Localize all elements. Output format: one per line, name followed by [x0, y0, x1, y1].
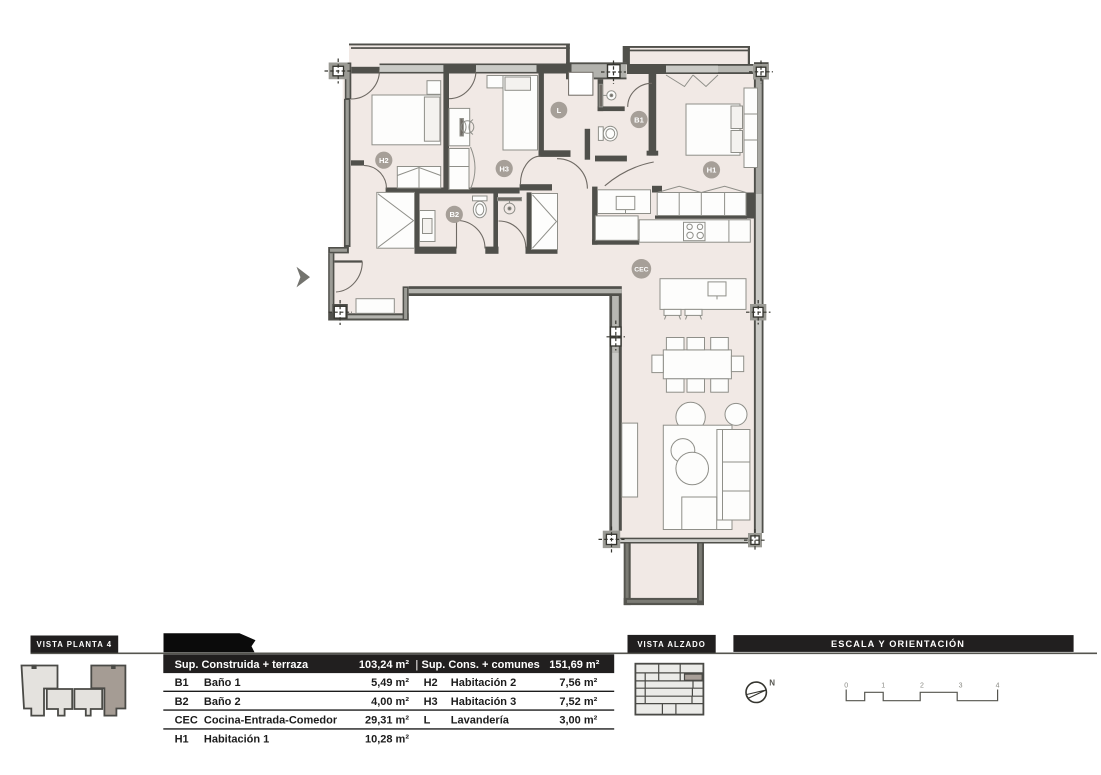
svg-text:N: N — [769, 679, 775, 688]
svg-text:B2: B2 — [175, 696, 189, 708]
svg-text:L: L — [424, 715, 431, 727]
svg-text:Sup. Cons. + comunes: Sup. Cons. + comunes — [422, 659, 540, 671]
svg-text:B1: B1 — [634, 115, 644, 124]
svg-text:5,49 m²: 5,49 m² — [371, 677, 409, 689]
svg-text:3: 3 — [959, 683, 963, 690]
svg-text:Baño 2: Baño 2 — [204, 696, 241, 708]
svg-text:7,56 m²: 7,56 m² — [559, 677, 597, 689]
svg-text:103,24 m²: 103,24 m² — [359, 659, 409, 671]
svg-text:CEC: CEC — [634, 266, 648, 273]
svg-text:Lavandería: Lavandería — [451, 715, 510, 727]
svg-text:Habitación 1: Habitación 1 — [204, 733, 269, 745]
svg-text:Cocina-Entrada-Comedor: Cocina-Entrada-Comedor — [204, 715, 338, 727]
svg-text:Habitación 3: Habitación 3 — [451, 696, 516, 708]
svg-text:Baño 1: Baño 1 — [204, 677, 241, 689]
svg-text:VISTA PLANTA 4: VISTA PLANTA 4 — [37, 640, 113, 649]
svg-text:4: 4 — [996, 683, 1000, 690]
svg-text:H3: H3 — [499, 164, 509, 173]
svg-text:151,69 m²: 151,69 m² — [549, 659, 599, 671]
svg-text:1: 1 — [881, 683, 885, 690]
svg-text:0: 0 — [844, 683, 848, 690]
svg-text:29,31 m²: 29,31 m² — [365, 715, 409, 727]
svg-text:Habitación 2: Habitación 2 — [451, 677, 516, 689]
svg-text:B1: B1 — [175, 677, 189, 689]
svg-text:7,52 m²: 7,52 m² — [559, 696, 597, 708]
svg-text:ESCALA Y ORIENTACIÓN: ESCALA Y ORIENTACIÓN — [831, 638, 965, 649]
svg-text:H1: H1 — [707, 166, 717, 175]
svg-text:10,28 m²: 10,28 m² — [365, 733, 409, 745]
svg-text:L: L — [557, 106, 562, 115]
svg-text:2: 2 — [920, 683, 924, 690]
svg-text:H1: H1 — [175, 733, 189, 745]
svg-text:H2: H2 — [379, 156, 389, 165]
svg-text:Sup. Construida + terraza: Sup. Construida + terraza — [175, 659, 309, 671]
svg-text:CEC: CEC — [175, 715, 198, 727]
svg-text:4,00 m²: 4,00 m² — [371, 696, 409, 708]
svg-text:3,00 m²: 3,00 m² — [559, 715, 597, 727]
svg-text:H3: H3 — [424, 696, 438, 708]
svg-text:|: | — [415, 659, 418, 671]
svg-text:B2: B2 — [449, 210, 459, 219]
svg-text:VISTA ALZADO: VISTA ALZADO — [637, 640, 705, 649]
svg-text:H2: H2 — [424, 677, 438, 689]
